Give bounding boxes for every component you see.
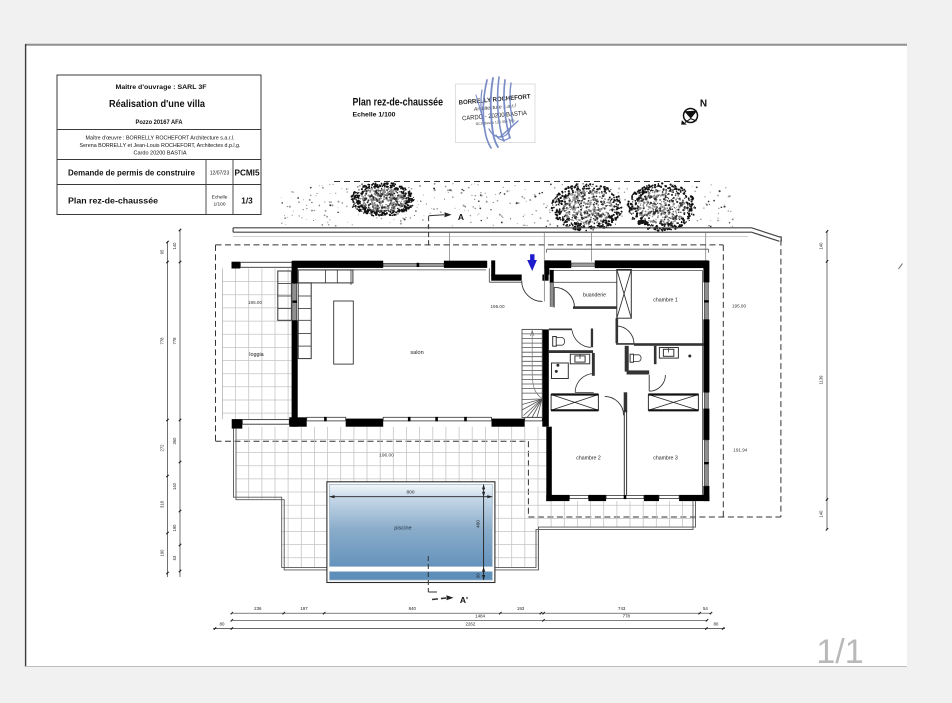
svg-text:197: 197: [300, 606, 308, 611]
svg-text:196.00: 196.00: [379, 453, 394, 459]
svg-text:190: 190: [160, 549, 165, 557]
svg-text:Plan rez-de-chaussée: Plan rez-de-chaussée: [68, 196, 158, 206]
svg-text:195.00: 195.00: [732, 304, 746, 309]
svg-text:buanderie: buanderie: [583, 293, 606, 299]
svg-text:A: A: [458, 212, 464, 222]
svg-text:A': A': [460, 595, 468, 605]
svg-text:1/3: 1/3: [241, 197, 253, 206]
svg-text:2262: 2262: [466, 622, 476, 627]
svg-text:778: 778: [623, 614, 631, 619]
svg-text:loggia: loggia: [249, 352, 263, 358]
svg-text:80: 80: [220, 622, 225, 627]
svg-text:piscine: piscine: [394, 526, 411, 532]
svg-text:800: 800: [406, 490, 414, 496]
svg-text:318: 318: [160, 500, 165, 508]
svg-text:140: 140: [819, 510, 824, 518]
svg-text:743: 743: [618, 606, 626, 611]
svg-text:840: 840: [409, 606, 417, 611]
svg-text:193: 193: [517, 606, 525, 611]
svg-text:chambre 1: chambre 1: [653, 298, 678, 304]
svg-text:1/1: 1/1: [816, 633, 863, 671]
svg-text:salon: salon: [410, 350, 423, 356]
svg-text:140: 140: [172, 242, 177, 250]
svg-text:Réalisation d'une villa: Réalisation d'une villa: [109, 99, 205, 110]
svg-text:Plan rez-de-chaussée: Plan rez-de-chaussée: [353, 97, 444, 109]
svg-text:chambre 3: chambre 3: [653, 456, 678, 462]
svg-text:236: 236: [254, 606, 262, 611]
svg-text:chambre 2: chambre 2: [576, 456, 601, 462]
svg-text:Maître d'ouvrage : SARL 3F: Maître d'ouvrage : SARL 3F: [116, 84, 207, 91]
svg-text:PCMI5: PCMI5: [234, 169, 259, 178]
svg-text:195.00: 195.00: [490, 304, 504, 309]
svg-text:272: 272: [160, 444, 165, 452]
svg-text:1/100: 1/100: [213, 202, 225, 208]
svg-text:54: 54: [703, 606, 708, 611]
svg-text:Maître d'œuvre : BORRELLY ROCH: Maître d'œuvre : BORRELLY ROCHEFORT Arch…: [86, 136, 235, 142]
svg-text:191.94: 191.94: [733, 448, 747, 453]
svg-text:Serena BORRELLY et Jean-Louis: Serena BORRELLY et Jean-Louis ROCHEFORT,…: [80, 143, 241, 149]
svg-text:778: 778: [172, 337, 177, 345]
svg-text:N: N: [700, 99, 707, 110]
svg-text:Pozzo 20167 AFA: Pozzo 20167 AFA: [136, 119, 183, 126]
svg-text:140: 140: [172, 482, 177, 490]
svg-text:63: 63: [172, 555, 177, 560]
svg-text:400: 400: [476, 520, 481, 528]
svg-text:95: 95: [160, 249, 165, 254]
svg-text:Echelle 1/100: Echelle 1/100: [353, 112, 396, 119]
svg-text:360: 360: [172, 437, 177, 445]
svg-text:195.00: 195.00: [248, 300, 262, 305]
svg-text:80: 80: [476, 573, 481, 578]
svg-text:12/07/23: 12/07/23: [210, 171, 230, 177]
svg-text:778: 778: [160, 337, 165, 345]
svg-text:Cardo 20200 BASTIA: Cardo 20200 BASTIA: [134, 151, 188, 157]
svg-text:80: 80: [713, 622, 718, 627]
svg-text:Echelle: Echelle: [212, 195, 228, 201]
svg-text:190: 190: [172, 524, 177, 532]
svg-text:1139: 1139: [819, 375, 824, 385]
svg-text:Demande de permis de construir: Demande de permis de construire: [68, 168, 195, 178]
svg-text:140: 140: [819, 242, 824, 250]
svg-text:1484: 1484: [475, 614, 485, 619]
